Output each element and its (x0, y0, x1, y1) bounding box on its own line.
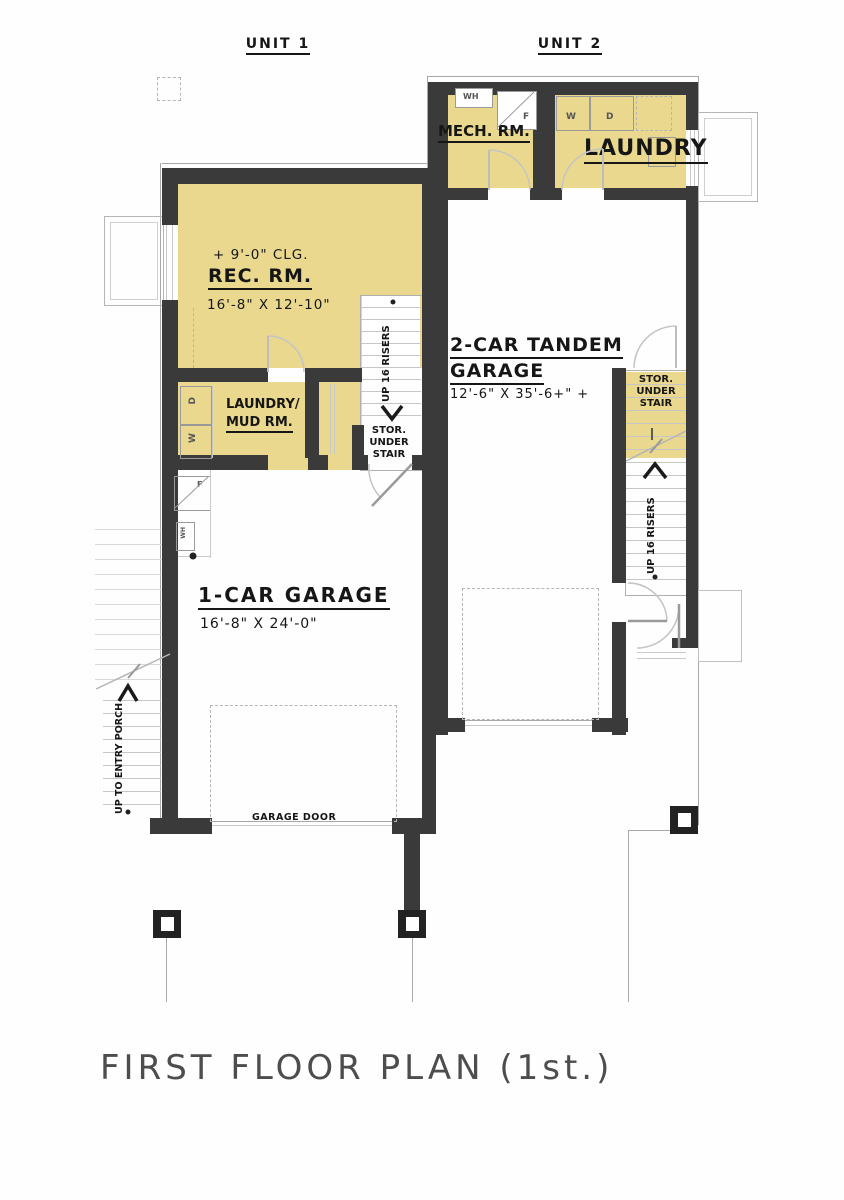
counter-line (212, 386, 213, 458)
alcove-line (178, 556, 210, 557)
wall-segment (672, 638, 698, 648)
dryer-label: D (606, 112, 613, 122)
window-bump-inner (704, 118, 752, 196)
rec-dims: 16'-8" X 12'-10" (207, 297, 331, 313)
room-label-garage2-line1: 2-CAR TANDEM (450, 334, 623, 356)
outline-line (428, 76, 699, 77)
room-label-rec: REC. RM. (208, 265, 312, 287)
garage-door-track-dashed (462, 588, 599, 720)
wall-segment (436, 718, 465, 732)
wall-segment (422, 735, 436, 819)
window-glass-line (166, 225, 167, 300)
unit1-label-text: UNIT 1 (246, 36, 310, 55)
wall-segment (162, 455, 268, 470)
alcove-line (210, 470, 211, 558)
unit2-label-text: UNIT 2 (538, 36, 602, 55)
post-above-outline (157, 77, 181, 101)
room-label-laundry: LAUNDRY (584, 136, 708, 161)
room-label-mech: MECH. RM. (438, 122, 530, 140)
dashed-line (193, 308, 194, 368)
garage-door-label: GARAGE DOOR (252, 812, 336, 823)
post-center (161, 917, 174, 931)
window-bump-inner (110, 222, 158, 300)
mud-dryer-box (180, 386, 212, 426)
furnace-label: F (523, 112, 529, 122)
wall-segment (178, 368, 268, 382)
entry-landing-outline (698, 590, 742, 662)
wall-segment (686, 82, 698, 130)
wall-segment (422, 188, 488, 200)
drawing-title: FIRST FLOOR PLAN (1st.) (100, 1048, 740, 1088)
porch-post (153, 910, 181, 938)
porch-steps (103, 688, 161, 816)
room-label-mud-line2: MUD RM. (226, 415, 293, 430)
room-label-garage2-line2: GARAGE (450, 360, 544, 382)
party-wall (422, 168, 448, 735)
stor-under-stair-left: STOR. UNDER STAIR (358, 425, 420, 461)
post-center (678, 813, 691, 827)
garage-door-line (212, 825, 392, 826)
floor-plan-canvas: UNIT 1 UNIT 2 (0, 0, 844, 1200)
opening-fill (328, 455, 352, 470)
wall-segment (530, 188, 562, 200)
wall-segment (404, 834, 420, 912)
up-to-entry-porch: UP TO ENTRY PORCH (114, 692, 125, 814)
wall-segment (162, 168, 428, 184)
window-glass-line (172, 225, 173, 300)
rec-ceiling-note: + 9'-0" CLG. (213, 247, 309, 263)
appliance-dashed-box (636, 96, 672, 131)
garage-door-track-dashed (210, 705, 397, 822)
outline-line (698, 200, 699, 825)
wall-segment (592, 718, 628, 732)
water-heater-label: WH (463, 92, 479, 101)
threshold-line (637, 652, 686, 653)
unit1-label: UNIT 1 (240, 36, 316, 52)
outline-line (698, 76, 699, 112)
stor-under-stair-right: STOR. UNDER STAIR (626, 374, 686, 410)
closet-shelf-line (330, 384, 331, 454)
garage-door-line (465, 725, 592, 726)
porch-post (398, 910, 426, 938)
room-label-mud-line1: LAUNDRY/ (226, 397, 300, 412)
garage1-dims: 16'-8" X 24'-0" (200, 616, 318, 632)
garage-furnace-label: F (197, 480, 202, 489)
garage-door-line (465, 720, 592, 721)
garage2-dims: 12'-6" X 35'-6+" + (450, 387, 589, 402)
room-label-garage1: 1-CAR GARAGE (198, 583, 390, 607)
garage-furnace-box (174, 476, 211, 511)
walkway-line (628, 830, 629, 1002)
wall-segment (162, 168, 178, 225)
porch-steps-above (95, 515, 162, 687)
wall-segment (604, 188, 688, 200)
mud-dryer-label: D (188, 397, 198, 404)
wall-segment (305, 382, 319, 458)
post-center (406, 917, 419, 931)
mud-washer-label: W (188, 433, 198, 443)
wall-segment (612, 368, 626, 583)
threshold-line (637, 658, 686, 659)
garage-water-heater-label: WH (180, 527, 187, 539)
wall-segment (686, 186, 698, 648)
wall-segment (392, 818, 436, 834)
walkway-line (412, 938, 413, 1002)
wall-segment (305, 368, 362, 382)
closet-shelf-line (334, 384, 335, 454)
up-16-risers-left: UP 16 RISERS (381, 302, 392, 402)
outline-line (162, 163, 428, 164)
walkway-line (166, 938, 167, 1002)
wall-segment (150, 818, 212, 834)
porch-post (670, 806, 698, 834)
unit2-label: UNIT 2 (532, 36, 608, 52)
opening-fill (268, 455, 308, 470)
washer-label: W (566, 112, 576, 122)
wall-segment (308, 455, 328, 470)
up-16-risers-right: UP 16 RISERS (646, 482, 657, 574)
door-arc (634, 326, 676, 368)
wall-segment (162, 300, 178, 825)
